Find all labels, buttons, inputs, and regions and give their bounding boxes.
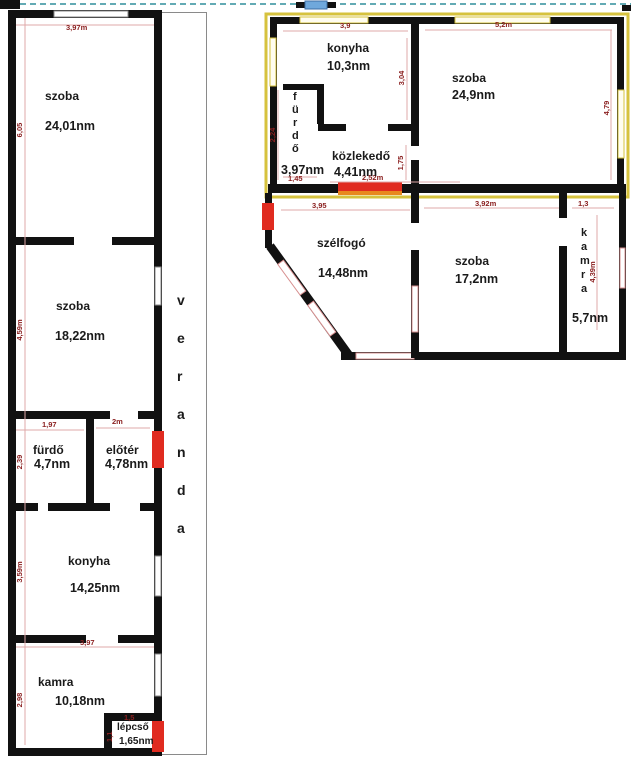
room-label-szoba1: szoba [45,89,79,103]
veranda-outline [161,13,207,755]
wall-segment [559,193,567,218]
dim-label: 2,24 [268,127,277,142]
room-label-szoba: szoba [452,71,486,85]
dim-label: 1,3 [578,199,588,208]
door-szelfogo [262,203,274,230]
room-area-szelfogo: 14,48nm [318,266,368,280]
dim-label: 5,2m [495,20,512,29]
wall-segment [86,419,94,511]
window [155,654,161,696]
kamra-letter: r [581,269,586,281]
room-label-furdo: fürdő [33,443,64,457]
window [155,267,161,305]
corner-chip [0,0,20,9]
veranda-letter: a [177,406,185,422]
veranda-letter: v [177,292,185,308]
room-area-konyha: 10,3nm [327,59,370,73]
window [412,286,418,332]
wall-segment [317,84,324,124]
window [155,556,161,596]
room-area-furdo: 4,7nm [34,457,70,471]
room-area-lepcso: 1,65nm [119,736,154,747]
floor-plan-page: 3,97m 6,05 4,59m 2,39 3,59m 2,98 1,97 2m… [0,0,631,763]
room-label-kamra-vertical: k a m r a [580,227,590,295]
room-area-furdo: 3,97nm [281,163,324,177]
wall-segment [268,184,626,193]
dim-label: 4,79 [602,101,611,116]
dim-label: 1,5 [124,713,134,722]
plan-lower-right: 3,95 3,92m 1,3 4,39m szélfogó 14,48nm sz… [262,193,626,360]
dim-label: 3,9 [340,21,350,30]
kamra-letter: a [581,283,588,295]
dim-label: 2,98 [15,693,24,708]
wall-segment [411,124,419,146]
veranda-letter: d [177,482,186,498]
veranda-letter: n [177,444,186,460]
furdo-letter: ő [292,143,299,155]
window [356,353,414,359]
door-eloter [152,431,164,468]
corner-chip-right [622,5,631,11]
furdo-letter: f [293,91,297,103]
door-main-entry [338,182,402,191]
window [300,17,368,23]
wall-segment [154,10,162,756]
room-area-szoba2: 18,22nm [55,329,105,343]
wall-segment [140,503,162,511]
furdo-letter: r [293,117,298,129]
wall-segment [559,246,567,358]
wall-segment [318,124,346,131]
wall-segment [118,635,162,643]
dim-label: 6,05 [15,123,24,138]
room-label-lepcso: lépcső [117,722,149,733]
dim-label: 3,97m [66,23,88,32]
furdo-letter: ü [292,104,299,116]
room-area-kozlekedo: 4,41nm [334,165,377,179]
window-diagonal [308,301,336,336]
dim-label: 3,04 [397,70,406,85]
room-label-szoba2: szoba [56,299,90,313]
room-label-kamra: kamra [38,675,74,689]
wall-segment [112,237,154,245]
dim-label: 3,92m [475,199,497,208]
dim-label: 2m [112,417,123,426]
wall-segment [8,503,38,511]
room-area-szoba: 17,2nm [455,272,498,286]
room-area-szoba: 24,9nm [452,88,495,102]
window [618,90,624,158]
veranda-letter: e [177,330,185,346]
room-label-eloter: előtér [106,443,139,457]
door-lepcso [152,721,164,752]
room-area-eloter: 4,78nm [105,457,148,471]
room-label-furdo-vertical: f ü r d ő [292,91,299,155]
wall-segment [8,411,110,419]
room-area-kamra: 10,18nm [55,694,105,708]
window [54,11,128,17]
room-label-szoba: szoba [455,254,489,268]
dim-label: 1,97 [42,420,57,429]
wall-segment [411,193,419,223]
dim-label: 2,39 [15,455,24,470]
room-label-konyha: konyha [327,41,369,55]
wall-segment [138,411,162,419]
door-threshold [338,191,402,195]
furdo-letter: d [292,130,299,142]
wall-segment [411,24,419,124]
plan-upper-right: 3,9 5,2m 3,04 4,79 2,24 1,45 2,52m 1,75 … [266,14,628,197]
room-label-kozlekedo: közlekedő [332,149,390,163]
room-label-szelfogo: szélfogó [317,236,366,250]
veranda-letter: a [177,520,185,536]
window [620,248,625,288]
wall-segment [8,635,86,643]
plan-left: 3,97m 6,05 4,59m 2,39 3,59m 2,98 1,97 2m… [8,10,207,756]
dim-label: 1,1 [105,732,114,742]
wall-segment [8,748,162,756]
room-label-konyha: konyha [68,554,110,568]
dim-label: 3,59m [15,561,24,583]
room-area-szoba1: 24,01nm [45,119,95,133]
marker-end-left [296,2,305,8]
wall-segment [48,503,110,511]
dim-label: 3,97 [80,638,95,647]
selection-handle[interactable] [305,1,327,9]
kamra-letter: a [581,241,588,253]
room-area-konyha: 14,25nm [70,581,120,595]
dim-label: 3,95 [312,201,327,210]
dim-label: 1,75 [396,156,405,171]
wall-segment [8,10,16,756]
floor-plan-canvas: 3,97m 6,05 4,59m 2,39 3,59m 2,98 1,97 2m… [0,0,631,763]
dim-label: 4,59m [15,319,24,341]
marker-end-right [327,2,336,8]
room-area-kamra: 5,7nm [572,311,608,325]
window-diagonal [278,260,306,295]
veranda-letter: r [177,368,183,384]
kamra-letter: k [581,227,588,239]
kamra-letter: m [580,255,590,267]
window [270,38,276,86]
